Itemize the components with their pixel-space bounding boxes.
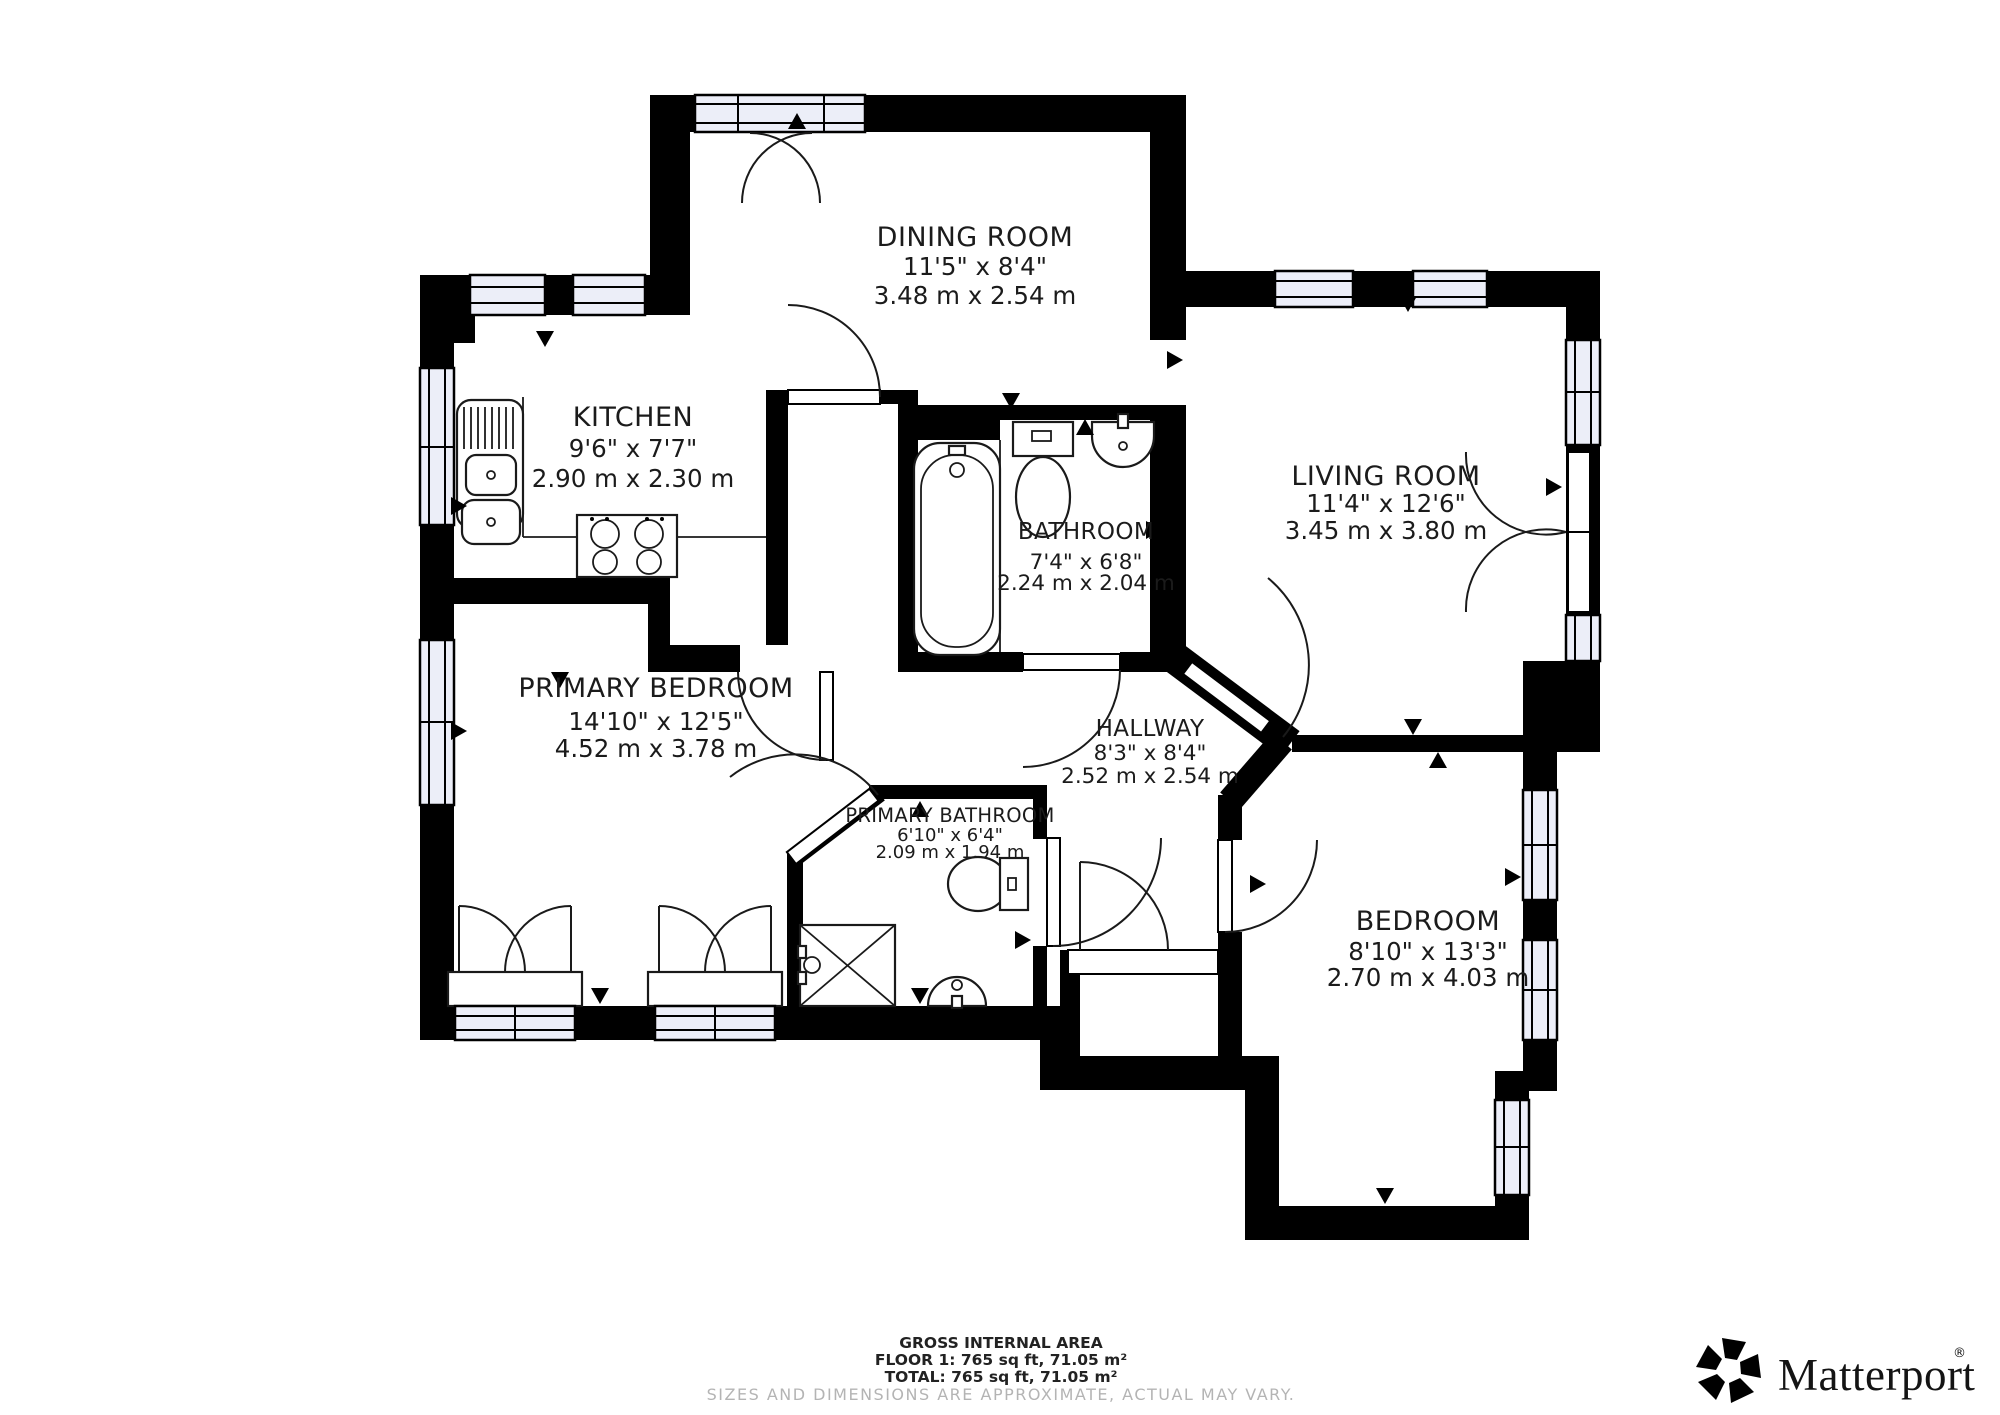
kitchen-sink-icon	[457, 400, 523, 544]
room-name: PRIMARY BEDROOM	[518, 673, 793, 704]
window-kitchen-left	[420, 368, 454, 525]
room-metric: 3.45 m x 3.80 m	[1285, 516, 1487, 545]
door-dining-double	[742, 133, 820, 203]
room-name: BEDROOM	[1356, 906, 1500, 937]
window-living-top-2	[1413, 271, 1487, 307]
room-imperial: 9'6" x 7'7"	[569, 434, 697, 463]
room-metric: 2.90 m x 2.30 m	[532, 464, 734, 493]
window-living-right-1	[1566, 340, 1600, 445]
room-imperial: 8'10" x 13'3"	[1348, 937, 1508, 966]
window-primary-bedroom-left	[420, 640, 454, 805]
label-living-room: LIVING ROOM 11'4" x 12'6" 3.45 m x 3.80 …	[1285, 461, 1487, 545]
bay-window-2	[648, 906, 782, 1040]
registered-trademark-symbol: ®	[1953, 1346, 1966, 1361]
label-bedroom: BEDROOM 8'10" x 13'3" 2.70 m x 4.03 m	[1327, 906, 1529, 992]
footer: GROSS INTERNAL AREA FLOOR 1: 765 sq ft, …	[707, 1334, 1296, 1404]
room-imperial: 8'3" x 8'4"	[1094, 741, 1207, 766]
label-hallway: HALLWAY 8'3" x 8'4" 2.52 m x 2.54 m	[1061, 716, 1239, 789]
room-imperial: 11'4" x 12'6"	[1306, 489, 1466, 518]
gross-internal-area-label: GROSS INTERNAL AREA	[899, 1334, 1102, 1352]
window-bedroom-lower-right	[1495, 1100, 1529, 1195]
window-living-top-1	[1275, 271, 1353, 307]
room-metric: 2.24 m x 2.04 m	[997, 571, 1175, 596]
floor-area-value: FLOOR 1: 765 sq ft, 71.05 m²	[875, 1351, 1127, 1369]
door-primary-bathroom-hall	[1047, 838, 1161, 946]
room-imperial: 11'5" x 8'4"	[903, 252, 1047, 281]
room-name: LIVING ROOM	[1291, 461, 1480, 492]
room-name: DINING ROOM	[877, 222, 1074, 253]
matterport-logo-icon	[1696, 1338, 1761, 1403]
window-living-right-2	[1566, 615, 1600, 661]
total-area-value: TOTAL: 765 sq ft, 71.05 m²	[885, 1368, 1118, 1386]
window-bedroom-right-1	[1523, 790, 1557, 900]
window-kitchen-top-1	[470, 275, 545, 315]
label-dining-room: DINING ROOM 11'5" x 8'4" 3.48 m x 2.54 m	[874, 222, 1076, 310]
door-living-room	[1183, 578, 1309, 737]
matterport-wordmark: Matterport	[1778, 1350, 1975, 1400]
room-name: HALLWAY	[1096, 716, 1205, 742]
label-primary-bathroom: PRIMARY BATHROOM 6'10" x 6'4" 2.09 m x 1…	[845, 804, 1054, 863]
room-metric: 3.48 m x 2.54 m	[874, 281, 1076, 310]
window-kitchen-top-2	[573, 275, 645, 315]
floorplan-page: DINING ROOM 11'5" x 8'4" 3.48 m x 2.54 m…	[0, 0, 2000, 1415]
window-dining-top	[695, 95, 865, 132]
bay-window-1	[448, 906, 582, 1040]
label-bathroom: BATHROOM 7'4" x 6'8" 2.24 m x 2.04 m	[997, 519, 1175, 596]
door-hallway-closet	[1068, 862, 1218, 974]
room-metric: 2.09 m x 1.94 m	[876, 842, 1025, 863]
label-primary-bedroom: PRIMARY BEDROOM 14'10" x 12'5" 4.52 m x …	[518, 673, 793, 763]
primary-sink-icon	[928, 977, 986, 1008]
bathtub-icon	[914, 440, 1000, 655]
room-metric: 2.70 m x 4.03 m	[1327, 963, 1529, 992]
disclaimer-text: SIZES AND DIMENSIONS ARE APPROXIMATE, AC…	[707, 1385, 1296, 1404]
room-metric: 2.52 m x 2.54 m	[1061, 764, 1239, 789]
room-name: KITCHEN	[573, 402, 694, 433]
stove-icon	[577, 515, 677, 577]
room-name: BATHROOM	[1018, 519, 1154, 545]
primary-toilet-icon	[948, 857, 1028, 911]
floor-plan-svg: DINING ROOM 11'5" x 8'4" 3.48 m x 2.54 m…	[0, 0, 2000, 1415]
door-kitchen-corridor	[788, 305, 880, 404]
bathroom-sink-icon	[1092, 414, 1154, 467]
room-name: PRIMARY BATHROOM	[845, 804, 1054, 827]
shower-icon	[798, 925, 895, 1006]
door-bedroom	[1218, 840, 1317, 932]
label-kitchen: KITCHEN 9'6" x 7'7" 2.90 m x 2.30 m	[532, 402, 734, 493]
branding: Matterport ®	[1696, 1338, 1975, 1403]
room-imperial: 14'10" x 12'5"	[568, 707, 743, 736]
room-metric: 4.52 m x 3.78 m	[555, 734, 757, 763]
